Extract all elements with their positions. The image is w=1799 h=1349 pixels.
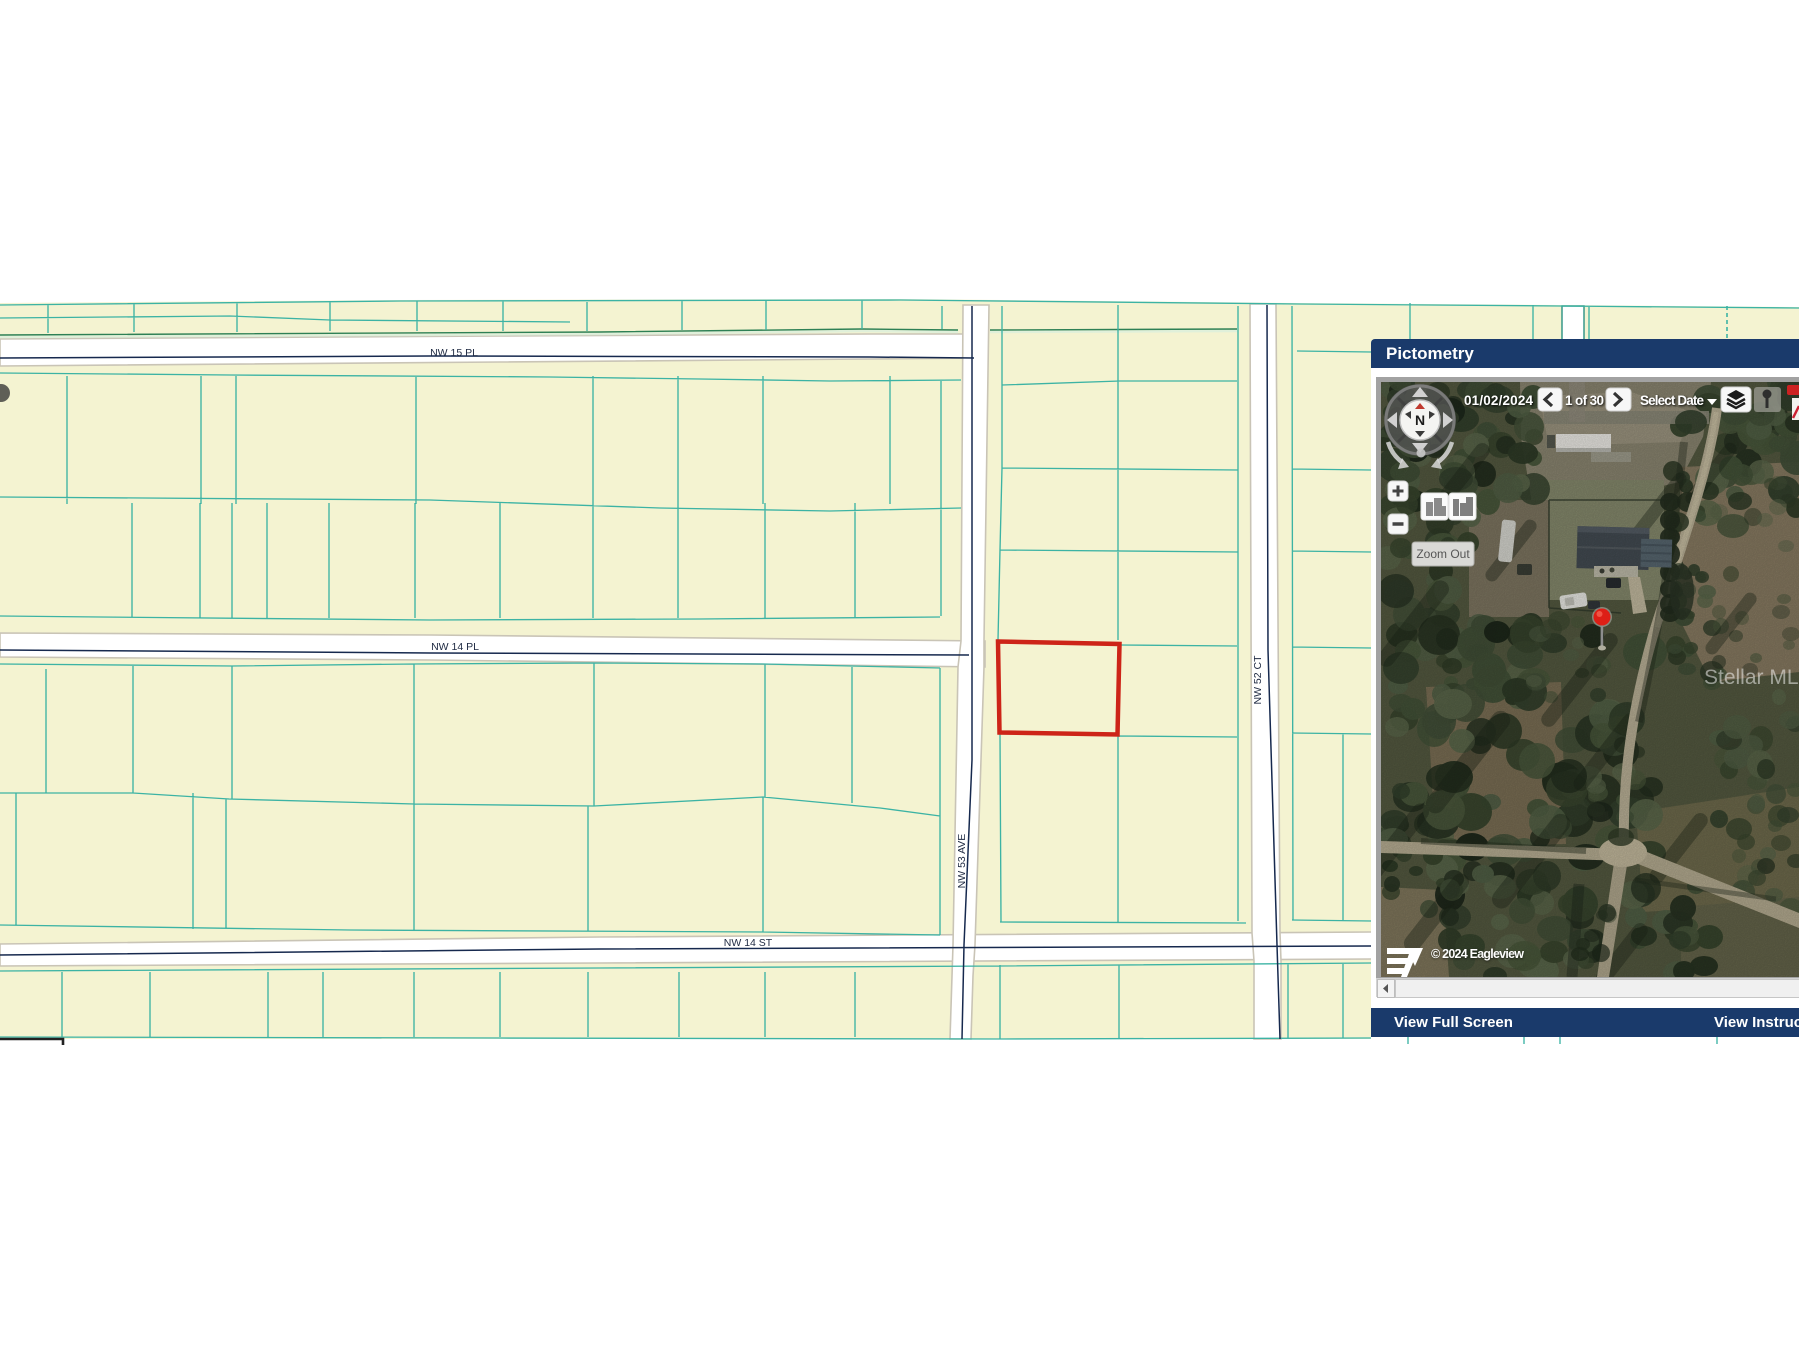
svg-text:01/02/2024: 01/02/2024 (1464, 393, 1533, 408)
svg-text:NW 15 PL: NW 15 PL (430, 347, 478, 359)
svg-text:1 of 30: 1 of 30 (1565, 393, 1604, 408)
svg-text:Select Date: Select Date (1640, 393, 1704, 408)
svg-text:NW 14 ST: NW 14 ST (724, 937, 773, 949)
svg-text:NW 53 AVE: NW 53 AVE (956, 834, 968, 889)
svg-text:© 2024 Eagleview: © 2024 Eagleview (1431, 947, 1524, 961)
svg-text:Zoom Out: Zoom Out (1416, 547, 1470, 561)
svg-text:Stellar MLS: Stellar MLS (1704, 666, 1799, 689)
svg-text:NW 14 PL: NW 14 PL (431, 641, 479, 653)
svg-text:N: N (1415, 412, 1425, 428)
svg-text:NW 52 CT: NW 52 CT (1252, 655, 1264, 705)
